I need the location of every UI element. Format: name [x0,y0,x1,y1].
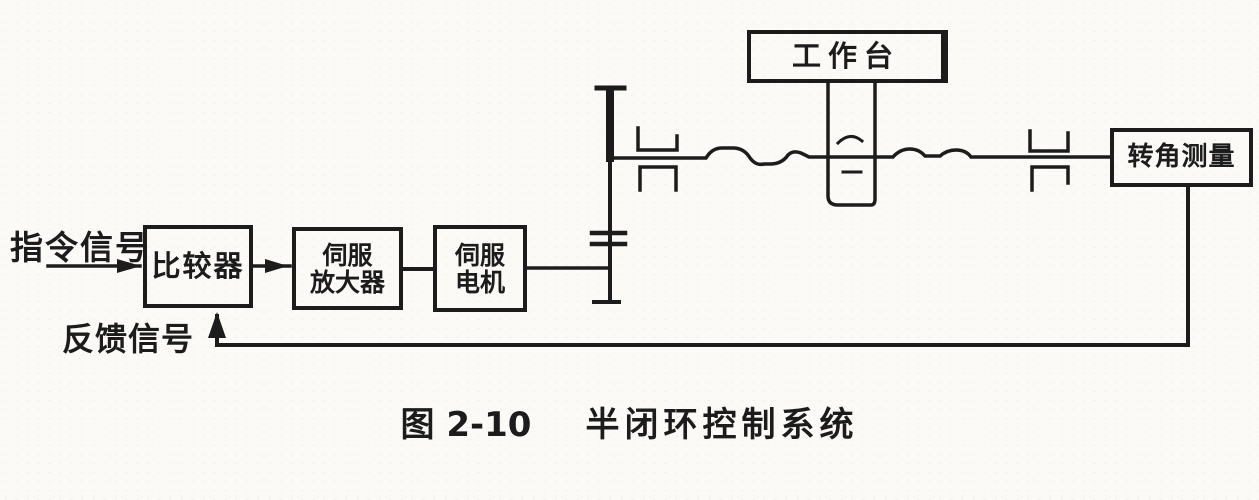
command-signal-label: 指令信号 [10,221,150,269]
servo-motor-label-line2: 电机 [455,269,505,296]
comparator-label: 比较器 [151,251,244,282]
semi-closed-loop-control-diagram: 指令信号 反馈信号 比较器 伺服 放大器 伺服 电机 工作台 转角测量 图 2-… [0,0,1259,500]
servo-motor-box: 伺服 电机 [433,225,527,312]
figure-caption: 图 2-10 半闭环控制系统 [0,397,1259,446]
nut-symbol [828,83,875,205]
comparator-to-amplifier-arrow [253,259,290,273]
worktable-box: 工作台 [747,30,948,83]
angle-measurement-box: 转角测量 [1110,128,1253,187]
bearing-right-icon [1030,131,1068,190]
angle-measurement-label: 转角测量 [1127,143,1235,171]
gear-shaft-symbol [594,88,624,302]
servo-motor-label-line1: 伺服 [455,242,505,269]
servo-amplifier-label-line2: 放大器 [310,269,385,296]
servo-amplifier-box: 伺服 放大器 [292,227,403,310]
comparator-box: 比较器 [143,225,253,308]
figure-title: 半闭环控制系统 [585,397,858,446]
servo-amplifier-label-line1: 伺服 [322,242,372,269]
worktable-label: 工作台 [792,41,900,72]
figure-number: 图 2-10 [401,397,532,446]
feedback-signal-label: 反馈信号 [62,314,194,360]
